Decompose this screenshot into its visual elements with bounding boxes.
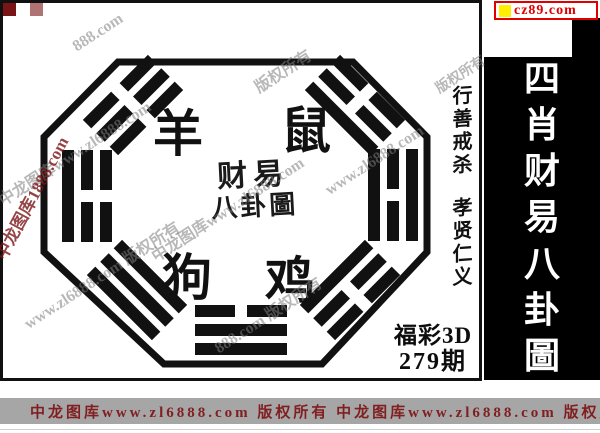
yellow-marker-icon bbox=[499, 5, 511, 17]
issue-game: 福彩3D bbox=[385, 323, 481, 349]
center-seal: 财易 八卦圖 bbox=[197, 156, 310, 225]
footer-watermark-text: 中龙图库www.zl6888.com 版权所有 中龙图库www.zl6888.c… bbox=[0, 401, 600, 422]
banner-step bbox=[572, 18, 600, 60]
banner-char: 财 bbox=[524, 153, 560, 189]
seal-line2: 八卦圖 bbox=[199, 189, 310, 225]
poster-canvas: 羊 鼠 狗 鸡 财易 八卦圖 行善戒杀 孝贤仁义 福彩3D 279期 四 肖 财… bbox=[0, 0, 600, 433]
zodiac-top-left: 羊 bbox=[153, 109, 203, 159]
banner-char: 四 bbox=[524, 61, 560, 97]
bagua-frame: 羊 鼠 狗 鸡 财易 八卦圖 行善戒杀 孝贤仁义 福彩3D 279期 bbox=[0, 0, 482, 381]
trigram-right bbox=[368, 147, 418, 243]
banner-char: 八 bbox=[524, 246, 560, 282]
footer-bar: 中龙图库www.zl6888.com 版权所有 中龙图库www.zl6888.c… bbox=[0, 398, 600, 424]
site-link[interactable]: cz89.com bbox=[494, 1, 598, 20]
zodiac-top-right: 鼠 bbox=[281, 106, 331, 156]
motto-part1: 行善戒杀 bbox=[446, 84, 475, 178]
banner-char: 肖 bbox=[524, 107, 560, 143]
trigram-left bbox=[62, 148, 112, 244]
trigram-bottom bbox=[193, 305, 289, 355]
banner-char: 易 bbox=[524, 199, 560, 235]
issue-period: 279期 bbox=[385, 349, 481, 377]
motto-part2: 孝贤仁义 bbox=[446, 196, 475, 290]
red-square-mark bbox=[3, 3, 16, 16]
title-banner: 四 肖 财 易 八 卦 圖 bbox=[484, 57, 600, 380]
banner-char: 卦 bbox=[524, 292, 560, 328]
red-square-mark bbox=[30, 3, 43, 16]
issue-block: 福彩3D 279期 bbox=[385, 323, 481, 377]
site-link-label: cz89.com bbox=[514, 3, 577, 19]
banner-char: 圖 bbox=[524, 338, 560, 374]
motto-column: 行善戒杀 孝贤仁义 bbox=[447, 85, 473, 289]
zodiac-bottom-left: 狗 bbox=[162, 253, 212, 303]
footer-divider bbox=[0, 429, 600, 430]
zodiac-bottom-right: 鸡 bbox=[265, 256, 315, 306]
